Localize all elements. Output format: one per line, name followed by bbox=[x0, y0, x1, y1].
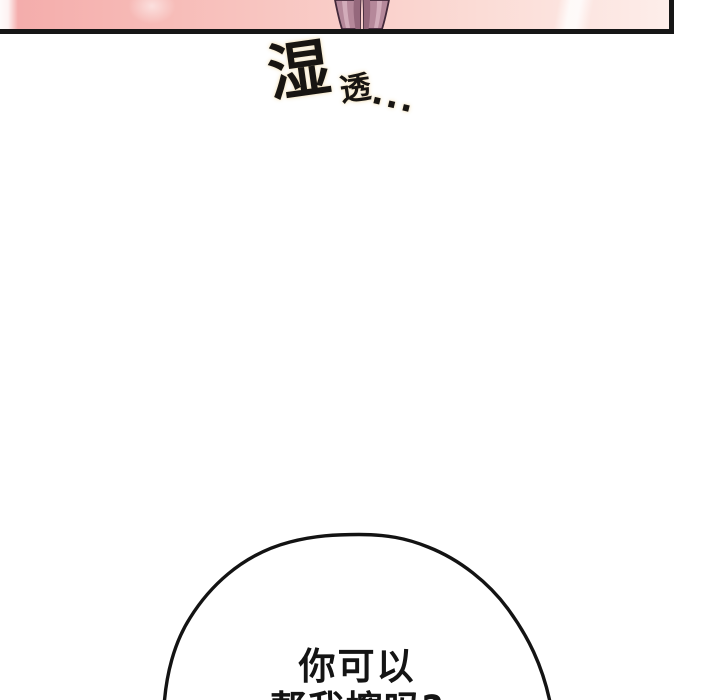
sfx-char-small: 透 bbox=[338, 72, 373, 107]
comic-page: 湿 透 ... 你可以 帮我擦吗? bbox=[0, 0, 720, 700]
speech-line-2: 帮我擦吗? bbox=[157, 688, 557, 700]
sfx-char-large: 湿 bbox=[264, 36, 334, 106]
speech-bubble-text: 你可以 帮我擦吗? bbox=[157, 646, 557, 700]
crossed-legs-art bbox=[327, 0, 397, 29]
comic-panel bbox=[0, 0, 674, 34]
speech-line-1: 你可以 bbox=[157, 646, 557, 688]
sfx-ellipsis: ... bbox=[369, 75, 421, 119]
